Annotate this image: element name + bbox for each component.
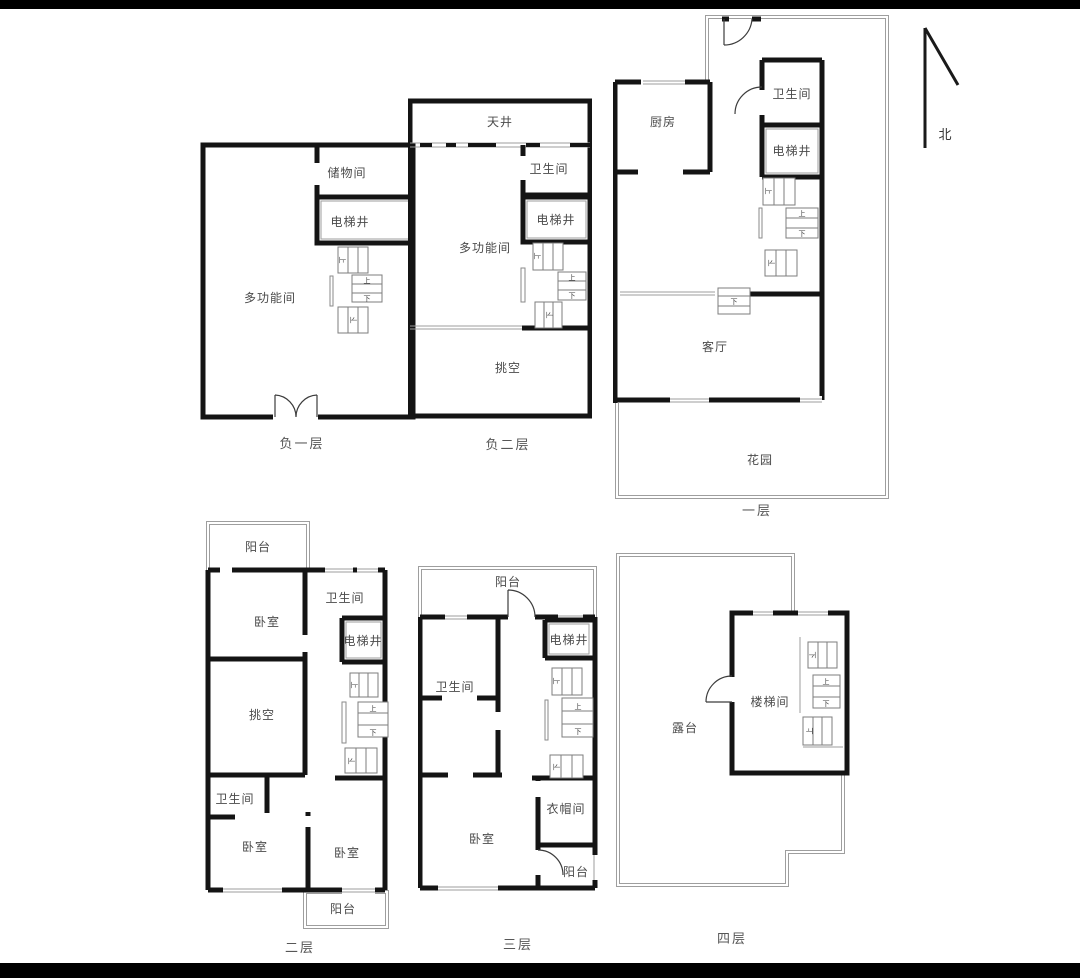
stair-label: 上 (569, 273, 576, 282)
balcony-door-arc (508, 590, 535, 617)
stairs-icon: 上 上 下 下 (342, 673, 388, 773)
stair-label: 下 (370, 729, 377, 737)
north-arrow: 北 (905, 15, 975, 155)
stair-label: 下 (569, 292, 576, 300)
stair-label: 下 (553, 764, 561, 771)
bath-door-arc (735, 87, 762, 114)
plan-floor-3: 上 上 下 下 阳台 电梯井 卫生间 卧室 衣帽间 阳台 (418, 565, 600, 953)
room-label-bedroom: 卧室 (469, 831, 495, 846)
room-label-storage: 储物间 (327, 165, 366, 180)
plan-basement-1: 上 上 下 下 多功能间 储物间 电梯井 (200, 140, 418, 430)
void-ledge (410, 326, 590, 329)
stair-label: 上 (533, 253, 542, 260)
plan-floor-3-drawing: 上 上 下 下 阳台 电梯井 卫生间 卧室 衣帽间 阳台 (418, 565, 600, 953)
window (342, 886, 375, 894)
stair-label: 下 (364, 295, 371, 303)
room-label-bedroom-c: 卧室 (334, 845, 360, 860)
plan-basement-1-drawing: 上 上 下 下 多功能间 储物间 电梯井 (200, 140, 418, 430)
stair-label: 下 (799, 230, 806, 238)
room-label-bath: 卫生间 (772, 87, 811, 101)
floor-caption-f1: 一层 (742, 500, 772, 519)
room-label-bedroom-a: 卧室 (254, 614, 280, 629)
stair-label: 上 (552, 678, 561, 685)
room-label-balcony-bottom: 阳台 (563, 864, 589, 879)
floor-caption-f4: 四层 (717, 928, 747, 947)
window (445, 613, 467, 621)
stair-label: 上 (764, 188, 773, 195)
door-opening (728, 677, 736, 702)
stair-label: 下 (575, 728, 582, 736)
room-label-bedroom-b: 卧室 (242, 839, 268, 854)
letterbox-bottom (0, 963, 1080, 978)
room-label-void: 挑空 (249, 708, 275, 722)
stairs-down-icon: 下 (620, 288, 750, 314)
stair-label: 上 (350, 682, 359, 689)
stair-label: 下 (348, 758, 356, 765)
stairs-icon: 上 上 下 下 (759, 178, 818, 276)
window (670, 396, 709, 404)
stair-label: 上 (338, 257, 347, 264)
room-label-balcony-top: 阳台 (495, 574, 521, 589)
floor-caption-f2: 二层 (285, 937, 315, 956)
window (641, 78, 685, 86)
plan-floor-1: 上 上 下 下 下 厨房 卫生间 电梯井 客厅 花园 (613, 15, 893, 510)
room-label-void: 挑空 (495, 361, 521, 375)
room-label-balcony-top: 阳台 (245, 539, 271, 554)
stair-label: 下 (823, 700, 830, 708)
room-label-elevator: 电梯井 (536, 213, 575, 227)
entry-double-door-arc (275, 395, 317, 417)
room-label-elevator: 电梯井 (549, 633, 588, 647)
room-label-bath-b: 卫生间 (215, 792, 254, 806)
stairs-icon: 上 上 下 下 (330, 247, 382, 333)
room-label-multi: 多功能间 (459, 241, 511, 255)
plan-floor-4: 下 上 下 上 楼梯间 露台 (613, 545, 853, 945)
stair-label: 下 (546, 312, 554, 319)
room-label-skylight: 天井 (487, 115, 513, 129)
stair-label: 上 (805, 728, 814, 735)
window (438, 884, 498, 892)
plan-basement-2: 上 上 下 下 天井 卫生间 电梯井 多功能间 挑空 (408, 98, 592, 423)
stairs-icon: 上 上 下 下 (521, 243, 586, 328)
entry-door-arc (724, 19, 752, 45)
room-label-stairwell: 楼梯间 (750, 694, 789, 709)
window (223, 886, 282, 894)
stairs-icon: 下 上 下 上 (800, 637, 843, 747)
stairs-icon: 上 上 下 下 (545, 668, 593, 778)
window (800, 396, 822, 404)
stair-label: 上 (575, 702, 582, 711)
room-label-bath: 卫生间 (435, 680, 474, 694)
floor-caption-b1: 负一层 (279, 433, 324, 452)
room-label-multi: 多功能间 (244, 291, 296, 305)
room-label-garden: 花园 (747, 452, 773, 467)
plan-floor-2: 上 上 下 下 阳台 卧室 卫生间 电梯井 挑空 卫生间 卧室 卧室 阳台 (205, 520, 390, 932)
room-label-bath-a: 卫生间 (325, 591, 364, 605)
room-label-elevator: 电梯井 (343, 634, 382, 648)
stair-label: 下 (731, 298, 738, 306)
room-label-bath: 卫生间 (529, 162, 568, 176)
stair-label: 上 (799, 209, 806, 218)
window (410, 143, 590, 147)
stair-label: 上 (364, 276, 371, 285)
room-label-balcony-bottom: 阳台 (330, 901, 356, 916)
letterbox-top (0, 0, 1080, 9)
stair-label: 上 (370, 704, 377, 713)
north-arrow-drawing: 北 (905, 15, 975, 155)
room-label-kitchen: 厨房 (650, 114, 676, 129)
room-label-living: 客厅 (702, 339, 728, 354)
north-label: 北 (938, 127, 951, 142)
void-ledge (620, 292, 715, 295)
plan-floor-2-drawing: 上 上 下 下 阳台 卧室 卫生间 电梯井 挑空 卫生间 卧室 卧室 阳台 (205, 520, 390, 932)
room-label-elevator: 电梯井 (330, 215, 369, 229)
stair-label: 上 (823, 677, 830, 686)
floorplan-sheet: 上 上 下 下 多功能间 储物间 电梯井 负一层 (0, 0, 1080, 978)
room-label-terrace: 露台 (672, 720, 698, 735)
window (357, 566, 378, 574)
room-label-elevator: 电梯井 (772, 144, 811, 158)
floor-caption-f3: 三层 (503, 934, 533, 953)
balcony-bottom-door-arc (538, 850, 563, 875)
plan-floor-4-drawing: 下 上 下 上 楼梯间 露台 (613, 545, 853, 945)
plan-floor-1-drawing: 上 上 下 下 下 厨房 卫生间 电梯井 客厅 花园 (613, 15, 893, 510)
plan-basement-2-drawing: 上 上 下 下 天井 卫生间 电梯井 多功能间 挑空 (408, 98, 592, 423)
window (325, 566, 353, 574)
walls (420, 613, 599, 892)
stair-label: 下 (808, 652, 816, 659)
stair-label: 下 (768, 260, 776, 267)
stair-label: 下 (350, 317, 358, 324)
floor-caption-b2: 负二层 (485, 434, 530, 453)
window (753, 609, 773, 617)
window (798, 609, 828, 617)
window (591, 855, 599, 880)
room-label-cloakroom: 衣帽间 (546, 801, 585, 816)
